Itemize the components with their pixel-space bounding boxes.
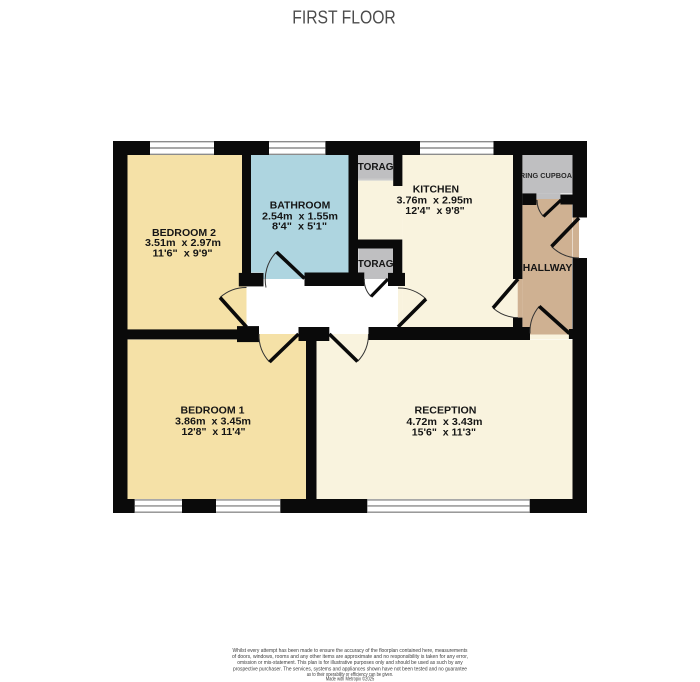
- svg-text:STORAGE: STORAGE: [351, 161, 400, 173]
- svg-text:11'6" x 9'9": 11'6" x 9'9": [153, 247, 213, 259]
- svg-text:HALLWAY: HALLWAY: [523, 262, 573, 274]
- svg-text:12'8" x 11'4": 12'8" x 11'4": [182, 426, 246, 438]
- svg-text:Made with Metropix ©2025: Made with Metropix ©2025: [326, 676, 375, 682]
- svg-text:8'4" x 5'1": 8'4" x 5'1": [272, 220, 327, 232]
- svg-text:AIRING CUPBOARD: AIRING CUPBOARD: [513, 171, 583, 180]
- svg-text:12'4" x 9'8": 12'4" x 9'8": [405, 205, 464, 217]
- svg-text:FIRST FLOOR: FIRST FLOOR: [292, 7, 396, 27]
- svg-text:of doors, windows, rooms and a: of doors, windows, rooms and any other i…: [232, 654, 468, 660]
- svg-text:15'6" x 11'3": 15'6" x 11'3": [412, 426, 476, 438]
- svg-text:Whilst every attempt has been: Whilst every attempt has been made to en…: [233, 648, 468, 654]
- svg-text:BEDROOM 1: BEDROOM 1: [181, 404, 245, 416]
- svg-text:RECEPTION: RECEPTION: [415, 405, 477, 417]
- svg-text:STORAGE: STORAGE: [351, 258, 400, 270]
- svg-text:omission or mis-statement. Thi: omission or mis-statement. This plan is …: [237, 660, 463, 666]
